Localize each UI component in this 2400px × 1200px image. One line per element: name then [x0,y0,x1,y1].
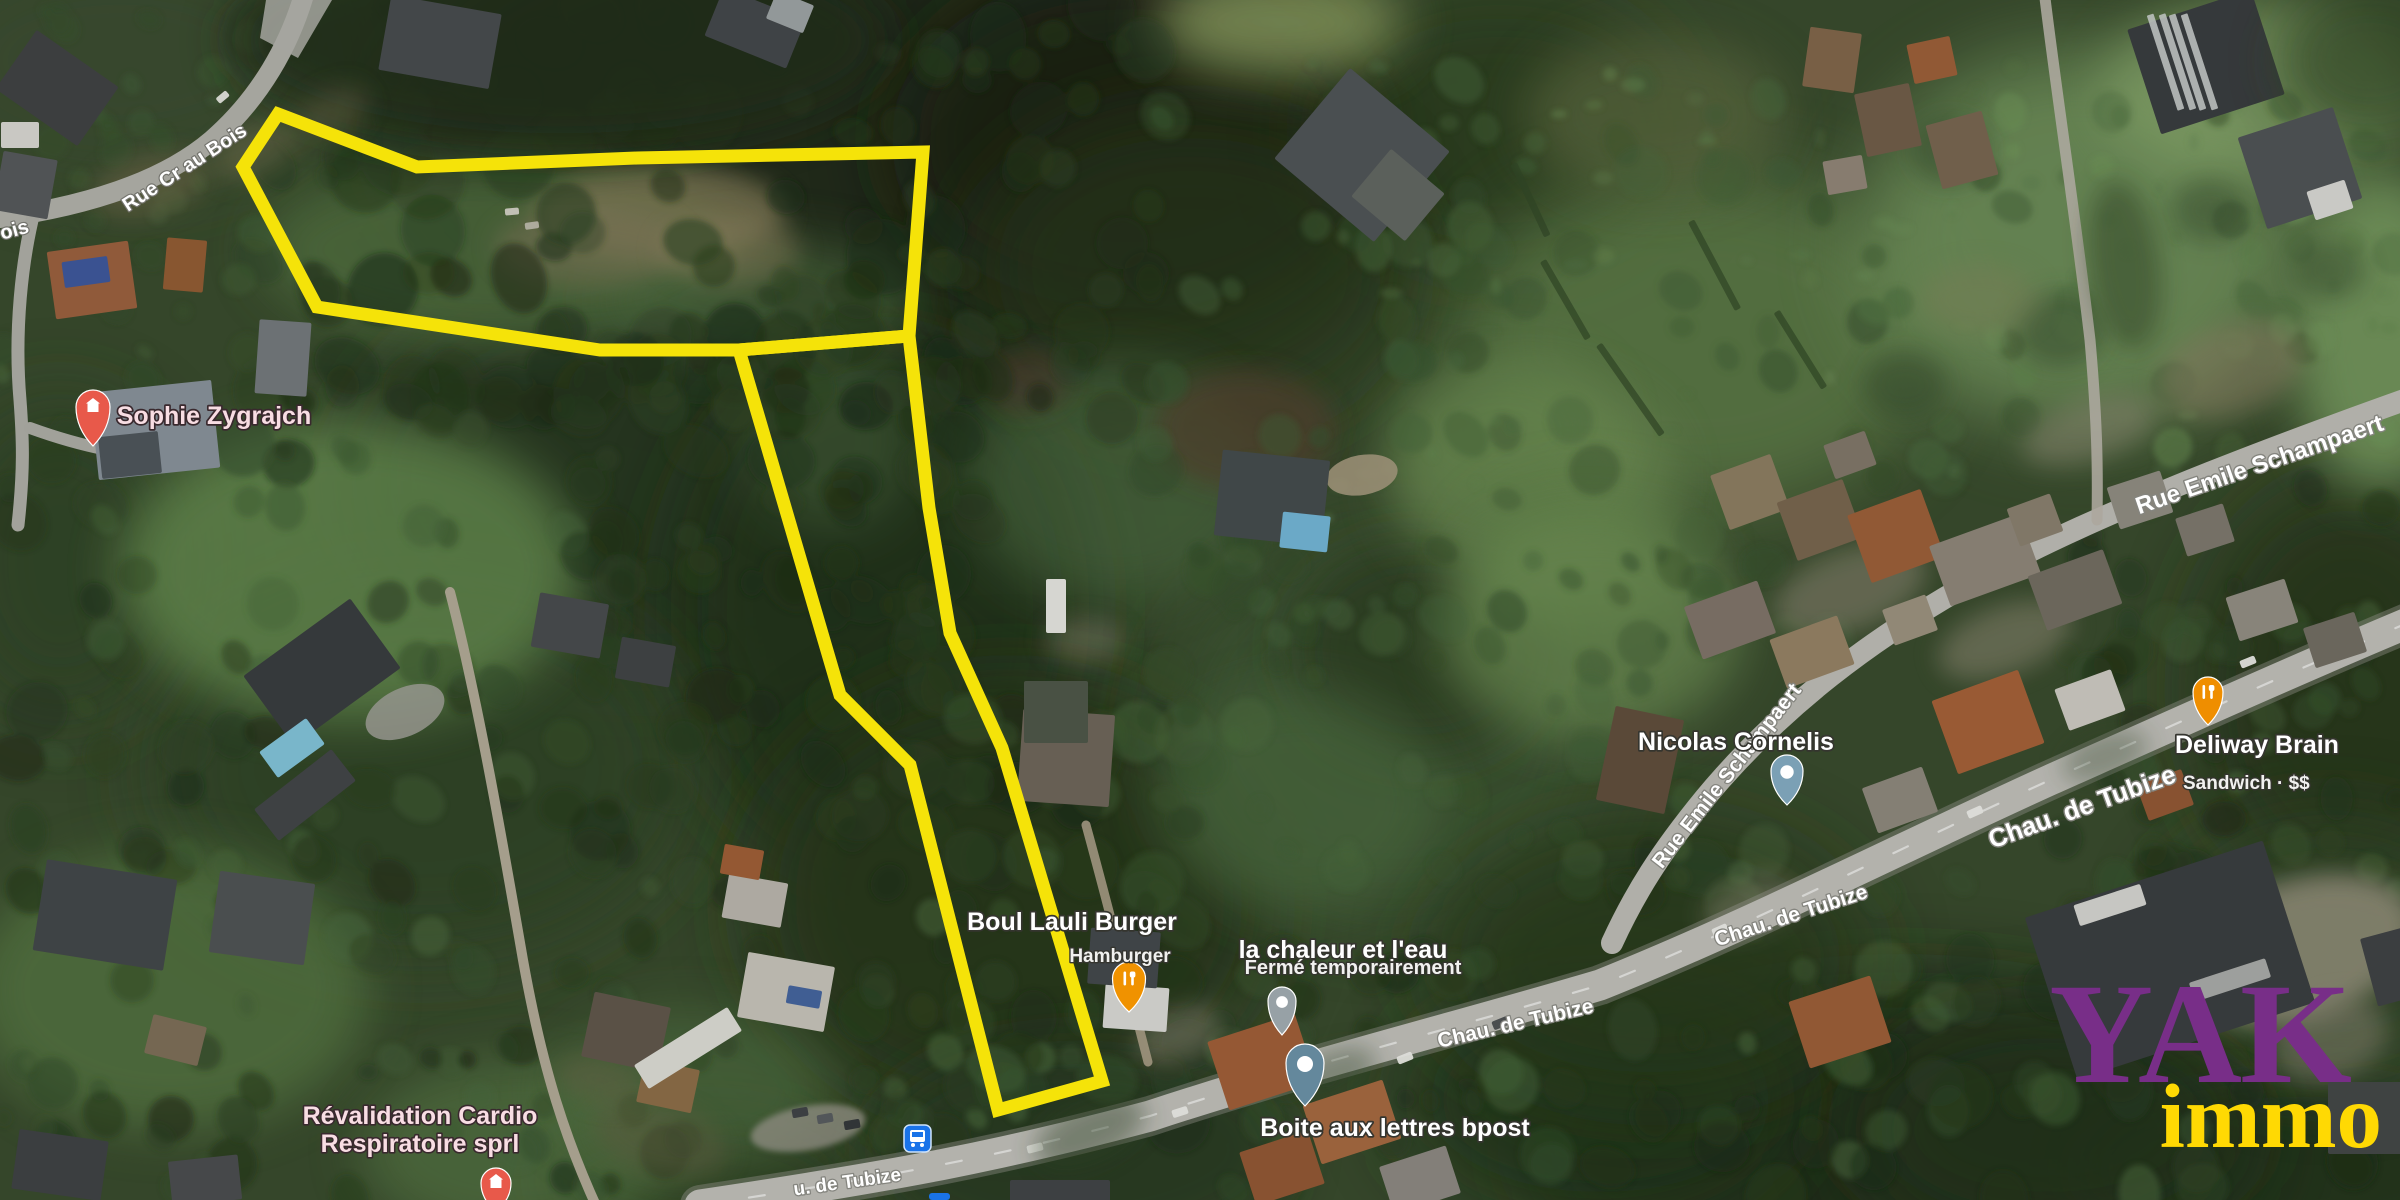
svg-text:Respiratoire sprl: Respiratoire sprl [321,1130,520,1158]
svg-text:Boul Lauli Burger: Boul Lauli Burger [967,908,1177,936]
svg-text:Boite aux lettres bpost: Boite aux lettres bpost [1260,1114,1530,1142]
svg-text:Révalidation Cardio: Révalidation Cardio [303,1102,538,1130]
svg-text:Hamburger: Hamburger [1069,946,1171,967]
svg-text:Nicolas Cornelis: Nicolas Cornelis [1638,728,1834,756]
svg-text:Sophie Zygrajch: Sophie Zygrajch [117,402,311,430]
svg-text:Deliway Brain: Deliway Brain [2175,731,2339,759]
svg-text:Sandwich · $$: Sandwich · $$ [2183,773,2310,794]
svg-text:Fermé temporairement: Fermé temporairement [1245,957,1462,979]
svg-text:immo: immo [2160,1066,2382,1167]
